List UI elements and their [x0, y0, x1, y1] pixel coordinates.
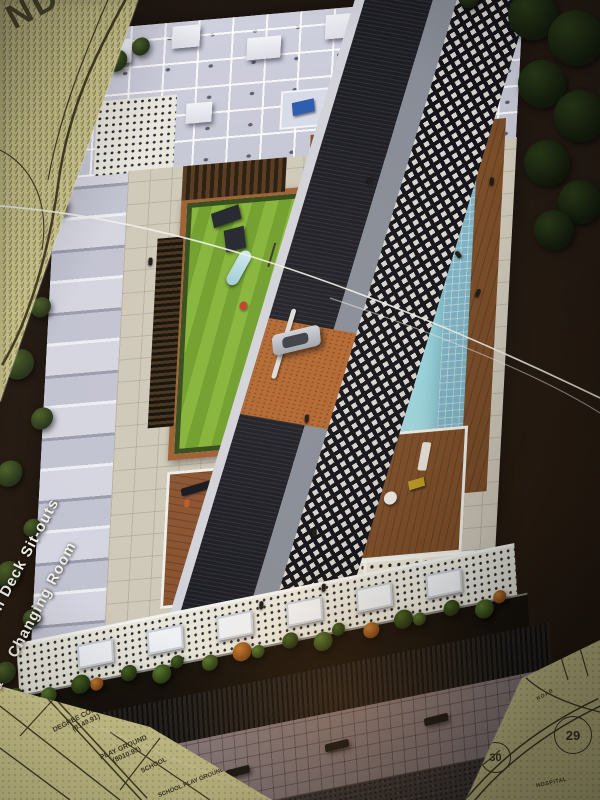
photo-of-architectural-rendering: ND GARDEN DEGREE COLLEGE (8149.91) PLAY …	[0, 0, 600, 800]
wires-and-edges-svg	[0, 0, 600, 800]
poster-edge-line	[466, 678, 522, 800]
overhead-wire	[0, 206, 600, 398]
poster-edge-line	[0, 686, 272, 800]
poster-edge-line	[0, 0, 138, 402]
overhead-wire	[330, 298, 600, 413]
